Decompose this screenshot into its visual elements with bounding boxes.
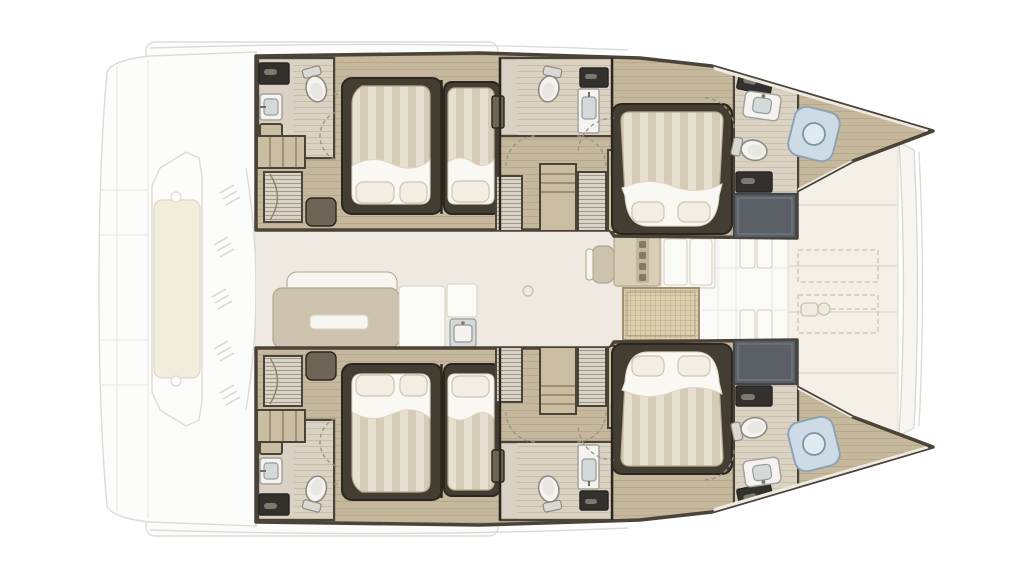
step-mat [306,198,336,226]
pillow [400,182,427,203]
chair [592,246,614,283]
wardrobe-louvered [578,172,606,232]
pillow [632,202,664,222]
deck-fitting-top [171,192,181,202]
crossbeam-edge [919,152,923,426]
shelf-unit [257,136,305,168]
coffee-table [310,315,368,329]
galley-units [399,284,477,348]
sink-icon [742,91,781,122]
woven-mat [623,288,699,340]
stairs [264,172,302,222]
floor-plan-svg [0,0,1021,578]
salon [256,230,792,348]
lounge-cushion [154,200,200,378]
nightstand [492,96,504,128]
forward-crossbeam [899,142,918,436]
catamaran-floor-plan [0,0,1021,578]
aft-single-cabin [442,80,501,214]
pillow [678,202,710,222]
deck-fitting-bottom [171,376,181,386]
pillow [452,181,489,202]
shower-room [734,194,796,238]
pillow [356,182,394,203]
